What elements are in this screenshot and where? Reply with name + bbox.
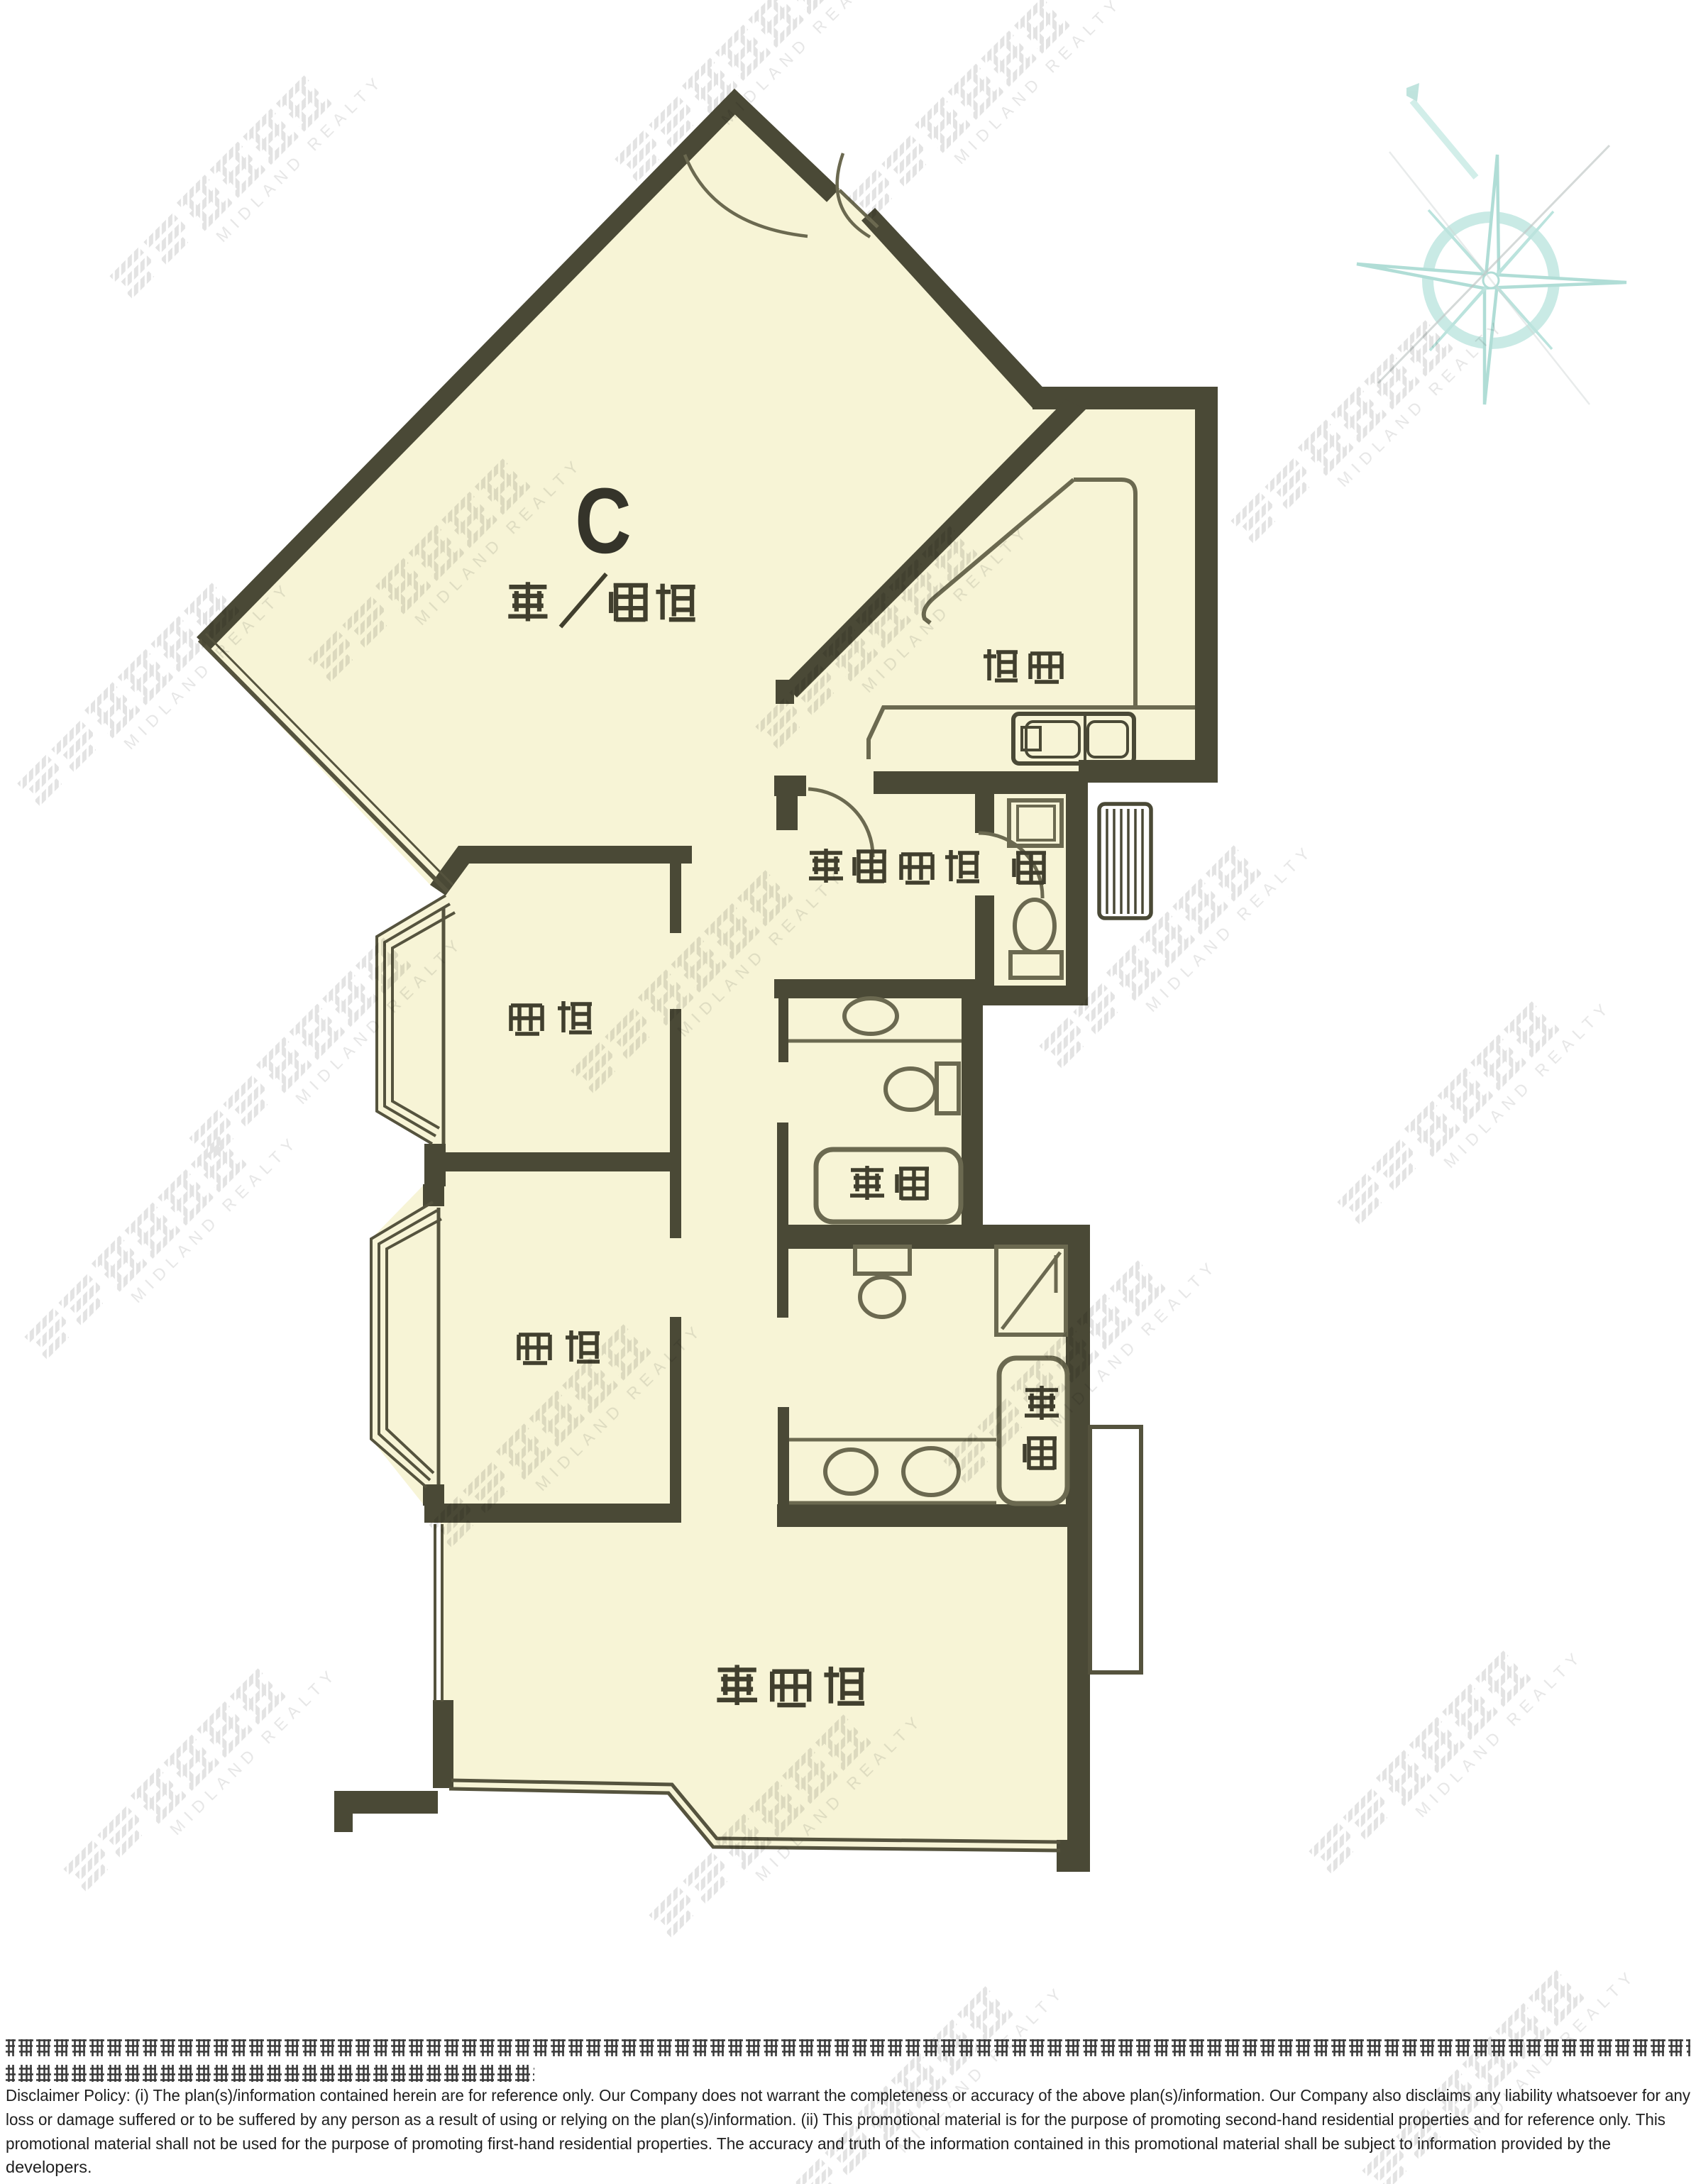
svg-text:Disclaimer Policy: (i) The pla: Disclaimer Policy: (i) The plan(s)/infor…	[6, 2086, 1690, 2105]
svg-text:promotional material shall not: promotional material shall not be used f…	[6, 2134, 1611, 2153]
svg-text:loss or damage suffered or to: loss or damage suffered or to be suffere…	[6, 2110, 1665, 2129]
svg-text:C: C	[575, 468, 631, 573]
svg-text:developers.: developers.	[6, 2158, 92, 2176]
